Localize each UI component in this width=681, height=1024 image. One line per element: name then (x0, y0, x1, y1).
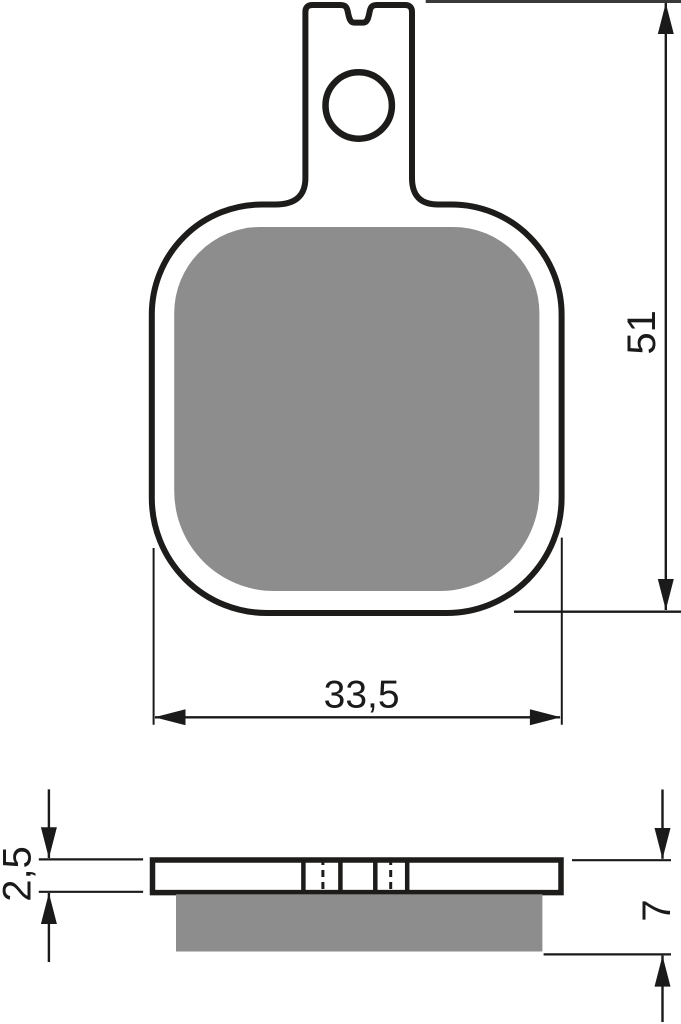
svg-text:2,5: 2,5 (0, 846, 40, 902)
svg-text:51: 51 (620, 310, 664, 355)
svg-text:7: 7 (635, 899, 679, 921)
svg-text:33,5: 33,5 (324, 674, 400, 717)
